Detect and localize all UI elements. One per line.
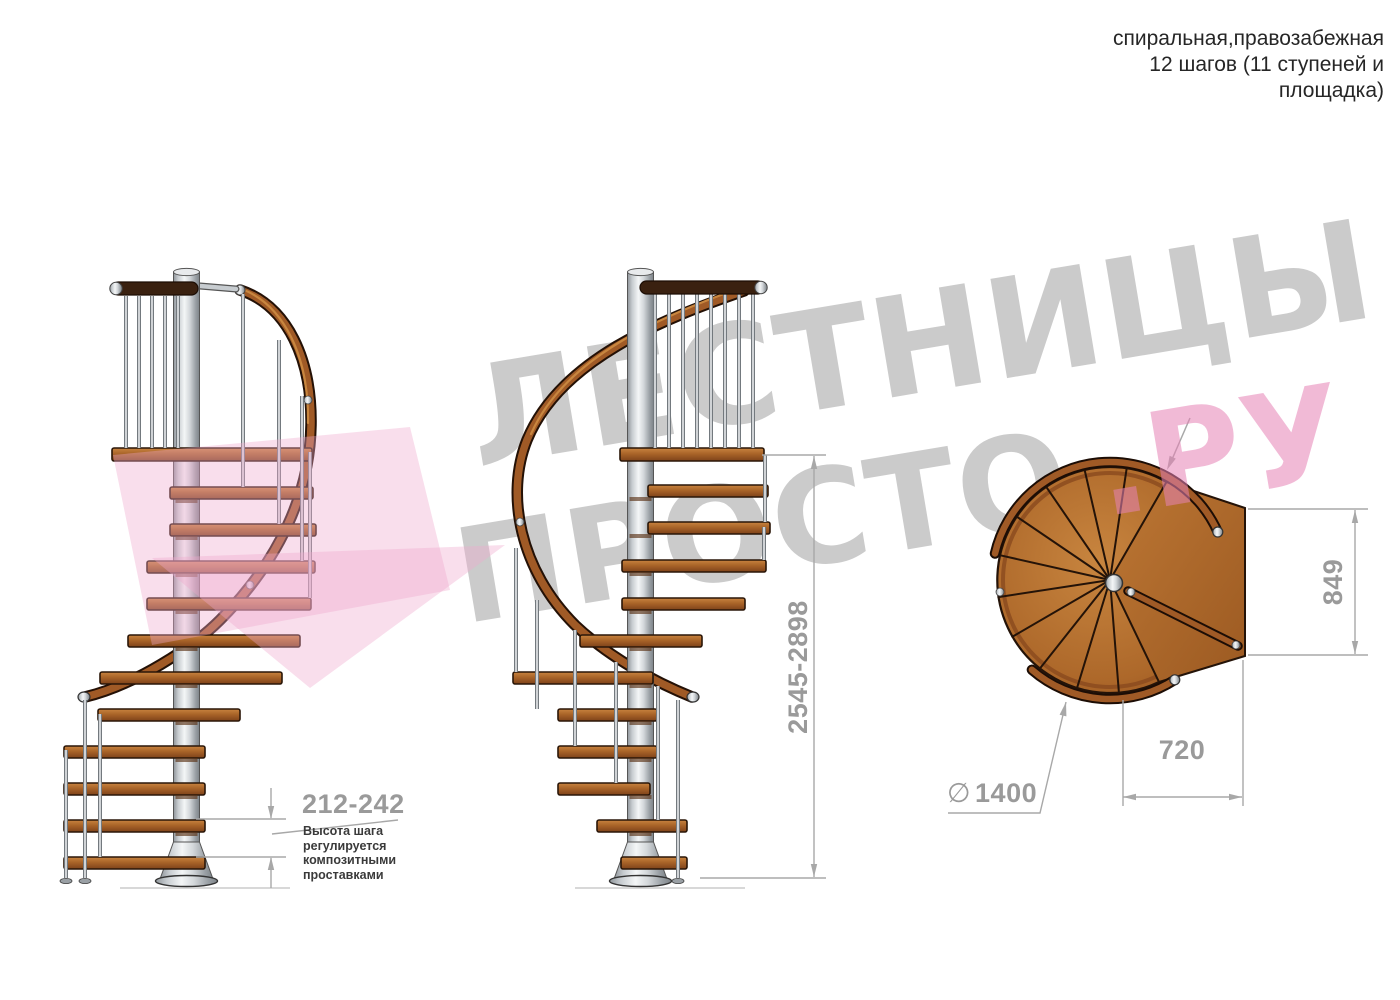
landing-rail-1 xyxy=(110,282,198,295)
dimension-total-height: 2545-2898 xyxy=(781,582,815,752)
dimension-diameter: ∅1400 xyxy=(947,778,1037,809)
side-view-2 xyxy=(513,268,770,888)
dimension-step-height: 212-242 xyxy=(302,789,405,820)
plan-center-pole xyxy=(1106,575,1123,592)
diameter-symbol: ∅ xyxy=(947,778,971,808)
side-view-1 xyxy=(60,268,316,888)
plan-view xyxy=(995,418,1245,699)
title-line1: спиральная,правозабежная xyxy=(1113,26,1384,52)
diameter-value: 1400 xyxy=(975,778,1037,808)
handrail-leader-arrow xyxy=(1167,418,1190,470)
drawing-sheet: ЛЕСТНИЦЫ ПРОСТО.РУ xyxy=(0,0,1400,1000)
dimension-landing-width: 849 xyxy=(1316,532,1350,632)
landing-rail-2 xyxy=(640,281,767,294)
step-height-note: Высота шага регулируется композитными пр… xyxy=(303,824,396,882)
title-line2: 12 шагов (11 ступеней и xyxy=(1113,52,1384,78)
staircase-technical-drawing xyxy=(0,0,1400,1000)
title-block: спиральная,правозабежная 12 шагов (11 ст… xyxy=(1113,26,1384,104)
dimension-landing-depth: 720 xyxy=(1122,735,1242,766)
title-line3: площадка) xyxy=(1113,78,1384,104)
